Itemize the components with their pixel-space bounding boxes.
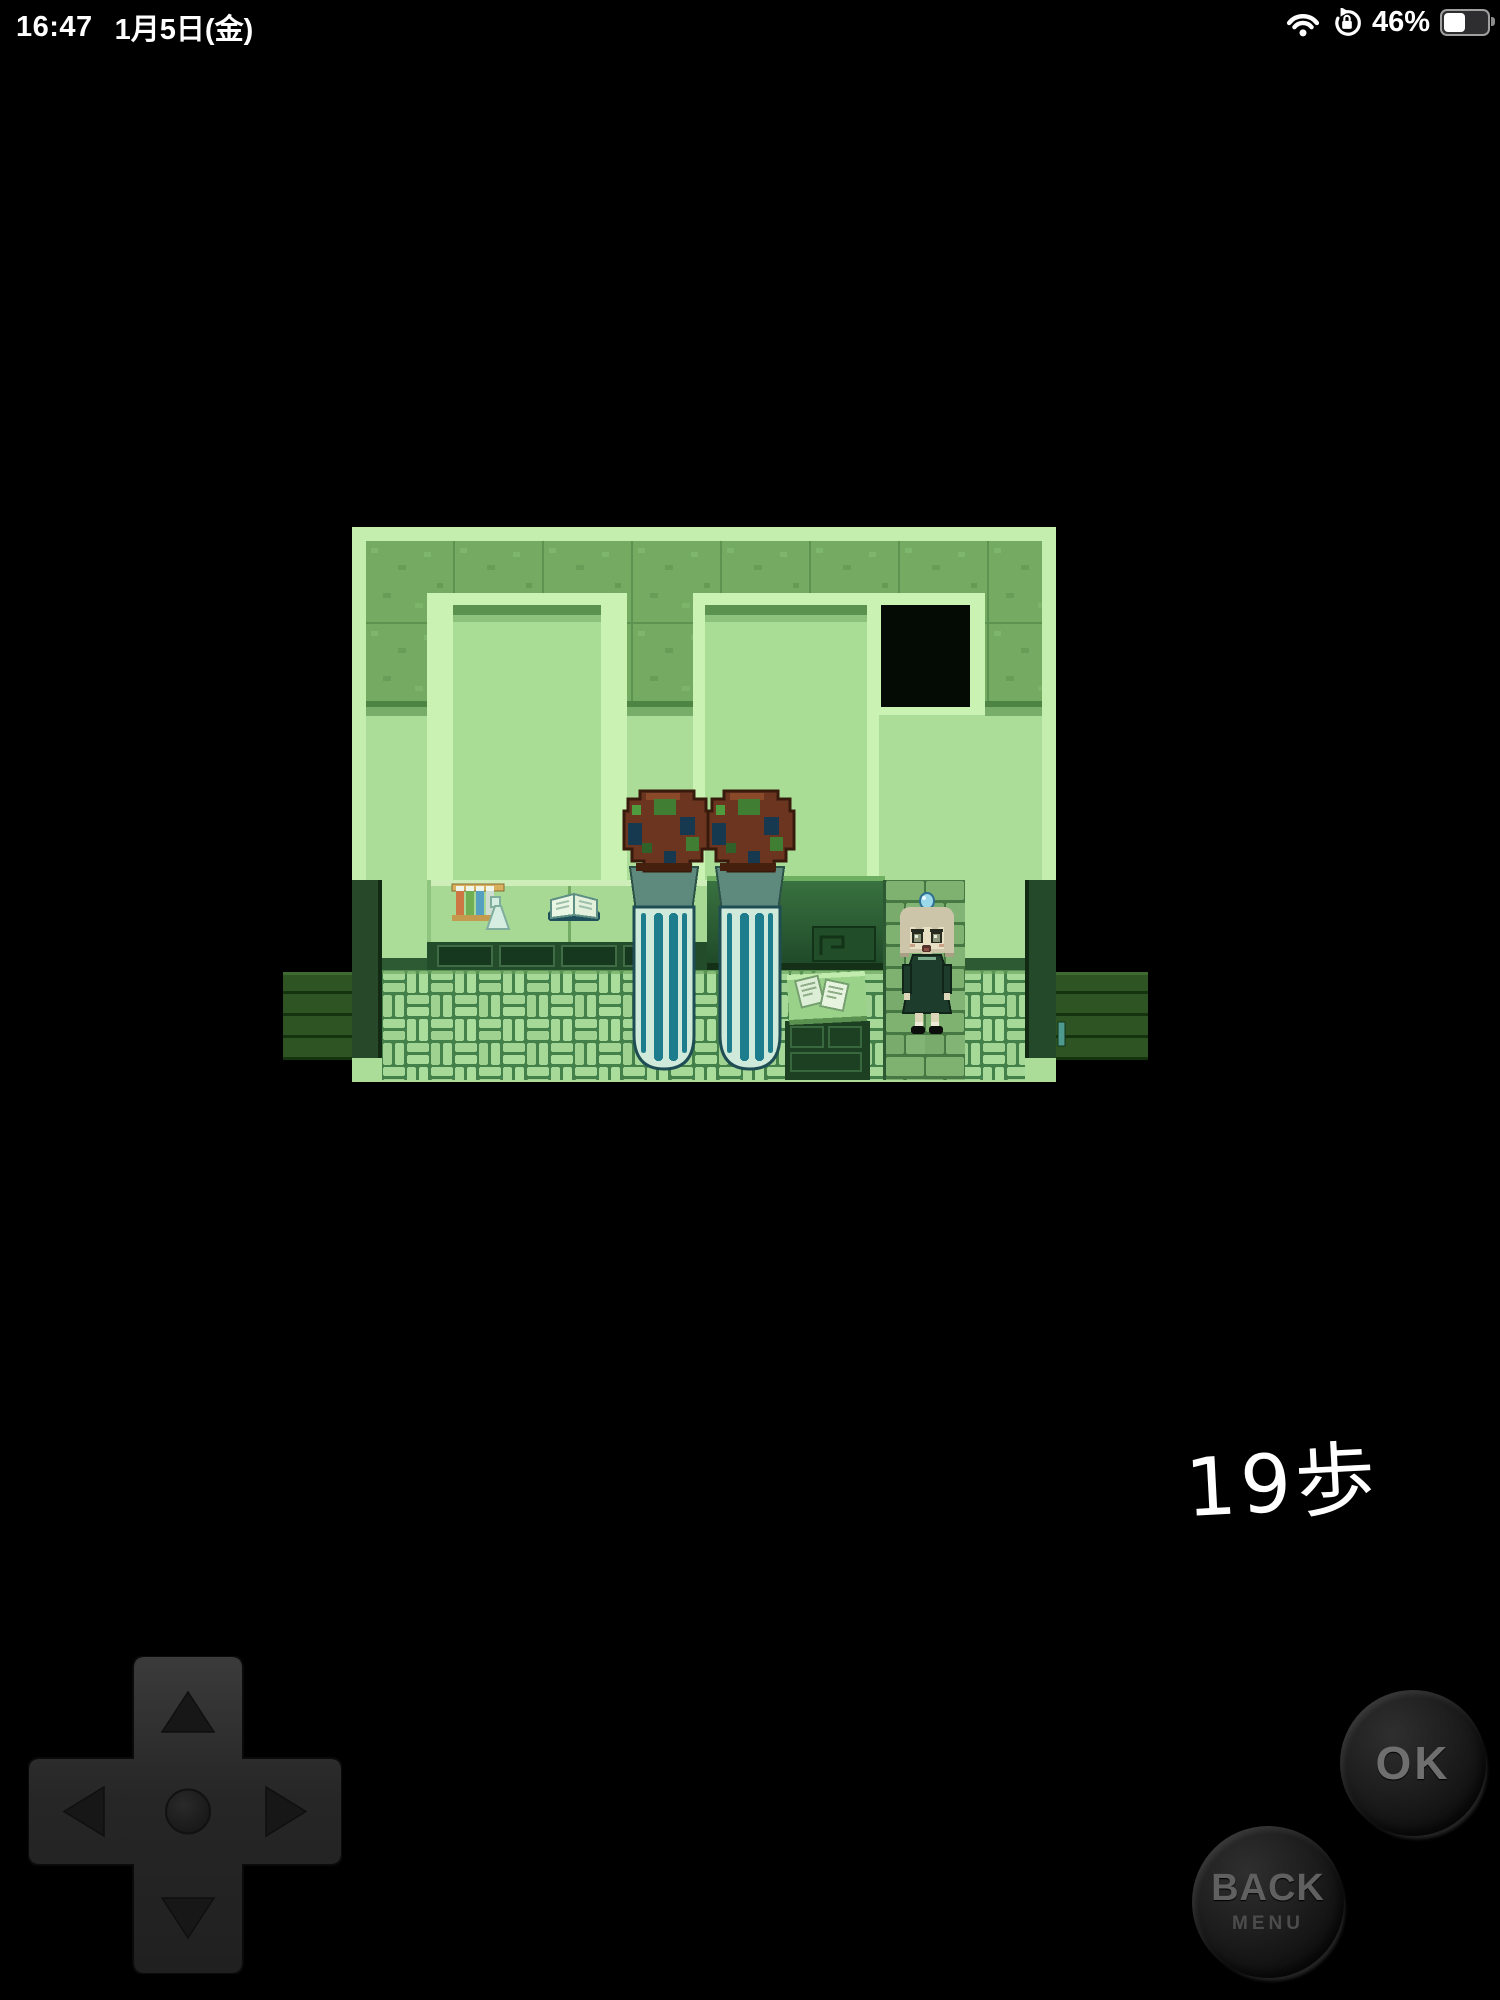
under-desk-cabinet [785, 1021, 870, 1080]
battery-tip [1491, 17, 1495, 26]
plank-corridor-right [1056, 972, 1148, 1060]
band-shadow [985, 707, 1042, 716]
plank-corridor-left [283, 972, 352, 1060]
back-label: BACK [1211, 1869, 1325, 1909]
game-scene [270, 527, 1178, 1090]
open-book [548, 894, 600, 921]
dpad-center[interactable] [166, 1790, 210, 1834]
dark-doorway [871, 593, 985, 715]
battery-fill [1444, 13, 1465, 32]
exit-edge-left [378, 880, 382, 1058]
specimen-tube-right [716, 867, 784, 1069]
specimen-tube-left [630, 867, 698, 1069]
wifi-icon [1284, 9, 1322, 37]
status-bar: 16:47 1月5日(金) 46% [0, 0, 1500, 44]
status-right: 46% [1284, 6, 1490, 39]
frame-top [352, 527, 1056, 541]
screen: 16:47 1月5日(金) 46% [0, 0, 1500, 2000]
band-shadow [366, 707, 427, 716]
battery-icon [1440, 9, 1490, 36]
band-shadow [627, 707, 693, 716]
side-exit-right [1025, 880, 1056, 1058]
status-left: 16:47 1月5日(金) [16, 6, 253, 48]
exit-edge-right [1025, 880, 1029, 1058]
side-exit-left [352, 880, 382, 1058]
dpad[interactable] [28, 1656, 342, 1974]
frame-left [352, 527, 366, 880]
specimen-cap-right [708, 791, 794, 871]
ok-button[interactable]: OK [1340, 1690, 1486, 1836]
battery-percent: 46% [1372, 6, 1430, 39]
specimen-cap-left [624, 791, 710, 871]
back-button[interactable]: BACK MENU [1192, 1826, 1344, 1978]
menu-label: MENU [1232, 1913, 1304, 1935]
ok-label: OK [1376, 1736, 1451, 1790]
status-time: 16:47 [16, 11, 93, 44]
orientation-lock-icon [1332, 8, 1362, 38]
frame-right [1042, 527, 1056, 880]
step-counter: 19歩 [1182, 1412, 1418, 1540]
alcove-left [427, 593, 627, 880]
wall-base-shadow [965, 958, 1025, 970]
status-date: 1月5日(金) [115, 6, 254, 48]
